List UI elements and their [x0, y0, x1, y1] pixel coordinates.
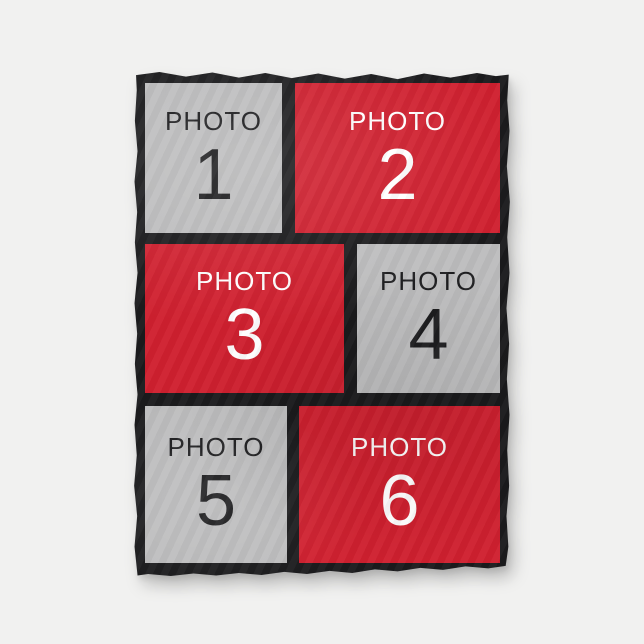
photo-number: 6 [379, 467, 419, 535]
photo-number: 5 [196, 467, 236, 535]
blanket-shadow-wrapper: PHOTO 1 PHOTO 2 PHOTO 3 PHOTO 4 PHOTO 5 … [133, 70, 511, 577]
photo-placeholder-5[interactable]: PHOTO 5 [145, 406, 287, 563]
photo-number: 3 [224, 301, 264, 369]
photo-number: 4 [408, 301, 448, 369]
photo-placeholder-1[interactable]: PHOTO 1 [145, 83, 282, 233]
photo-placeholder-2[interactable]: PHOTO 2 [295, 83, 500, 233]
photo-label: PHOTO [380, 267, 477, 297]
photo-collage-fleece-blanket[interactable]: PHOTO 1 PHOTO 2 PHOTO 3 PHOTO 4 PHOTO 5 … [133, 70, 511, 577]
photo-placeholder-4[interactable]: PHOTO 4 [357, 244, 500, 393]
photo-number: 1 [193, 141, 233, 209]
photo-label: PHOTO [349, 107, 446, 137]
photo-label: PHOTO [196, 267, 293, 297]
product-photo-background: PHOTO 1 PHOTO 2 PHOTO 3 PHOTO 4 PHOTO 5 … [0, 0, 644, 644]
photo-label: PHOTO [168, 433, 265, 463]
photo-placeholder-3[interactable]: PHOTO 3 [145, 244, 344, 393]
photo-number: 2 [377, 141, 417, 209]
photo-placeholder-6[interactable]: PHOTO 6 [299, 406, 500, 563]
photo-label: PHOTO [165, 107, 262, 137]
photo-label: PHOTO [351, 433, 448, 463]
